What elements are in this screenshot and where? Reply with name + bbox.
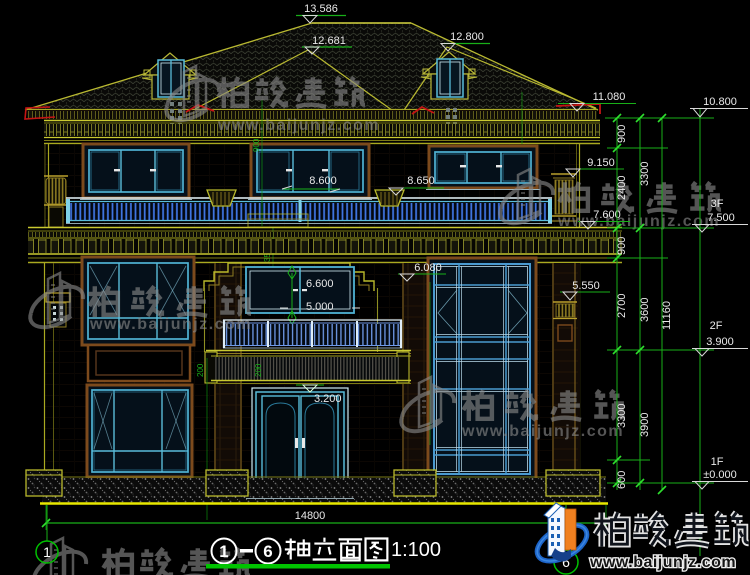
svg-text:12.800: 12.800: [450, 31, 484, 43]
svg-text:6: 6: [263, 542, 272, 561]
svg-text:200: 200: [254, 363, 263, 377]
svg-text:9.150: 9.150: [587, 157, 615, 169]
svg-text:1F: 1F: [711, 456, 724, 468]
svg-text:900: 900: [252, 138, 261, 152]
svg-text:12.681: 12.681: [312, 35, 346, 47]
svg-text:www.baijunjz.com: www.baijunjz.com: [461, 423, 624, 440]
svg-text:1: 1: [43, 544, 51, 560]
svg-text:3F: 3F: [711, 198, 724, 210]
svg-text:13.586: 13.586: [304, 3, 338, 15]
svg-text:8.650: 8.650: [407, 175, 435, 187]
svg-text:6.600: 6.600: [306, 278, 334, 290]
svg-text:200: 200: [196, 363, 205, 377]
svg-text:11160: 11160: [661, 301, 673, 330]
svg-text:www.baijunjz.com: www.baijunjz.com: [589, 554, 736, 571]
svg-text:600: 600: [616, 471, 628, 489]
svg-text:1:100: 1:100: [391, 539, 441, 561]
svg-text:5.000: 5.000: [306, 301, 334, 313]
svg-text:2700: 2700: [616, 294, 628, 318]
svg-text:±0.000: ±0.000: [703, 469, 737, 481]
svg-text:1: 1: [219, 542, 228, 561]
svg-text:6.080: 6.080: [414, 262, 442, 274]
svg-text:3300: 3300: [639, 162, 651, 186]
svg-text:7.500: 7.500: [707, 212, 735, 224]
svg-text:8.600: 8.600: [309, 175, 337, 187]
svg-text:10.800: 10.800: [703, 96, 737, 108]
svg-text:5.550: 5.550: [572, 280, 600, 292]
svg-text:3900: 3900: [639, 413, 651, 437]
svg-text:2400: 2400: [616, 176, 628, 200]
svg-text:900: 900: [616, 125, 628, 143]
svg-text:3600: 3600: [639, 298, 651, 322]
svg-text:3.900: 3.900: [706, 336, 734, 348]
svg-text:www.baijunjz.com: www.baijunjz.com: [89, 316, 252, 333]
svg-text:11.080: 11.080: [593, 91, 626, 103]
svg-text:www.baijunjz.com: www.baijunjz.com: [217, 117, 380, 134]
svg-text:3300: 3300: [616, 404, 628, 428]
svg-text:900: 900: [616, 237, 628, 255]
svg-text:2F: 2F: [710, 320, 723, 332]
svg-text:3.200: 3.200: [314, 393, 342, 405]
svg-text:14800: 14800: [295, 510, 326, 522]
